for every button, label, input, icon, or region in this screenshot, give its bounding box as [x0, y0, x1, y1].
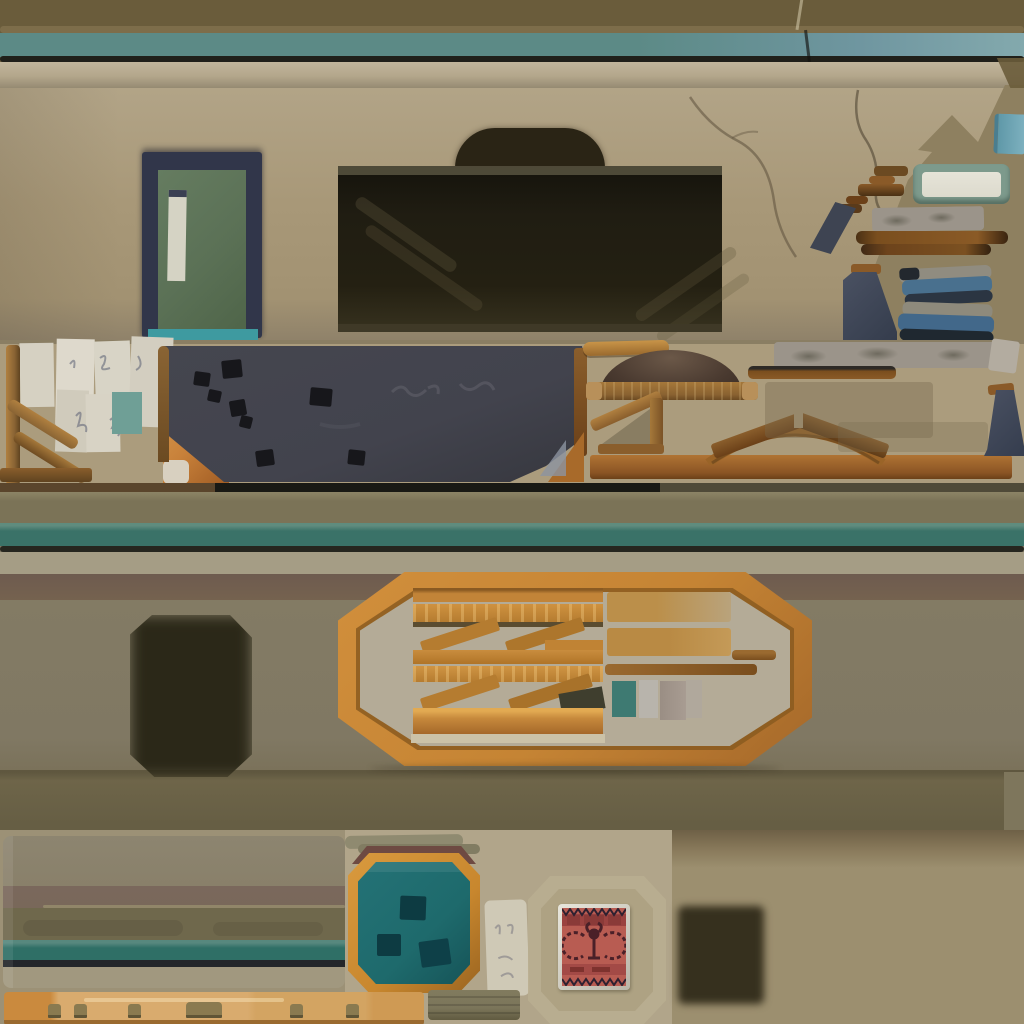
blue-tile: [993, 113, 1024, 154]
board-patch: [347, 449, 365, 466]
stamp-poster: [558, 904, 630, 990]
hatch-hole-2: [377, 934, 401, 956]
skirting-band: [0, 770, 1024, 830]
strata-panel: [3, 836, 345, 988]
board-patch: [207, 389, 222, 403]
plank-peg: [128, 1004, 141, 1018]
band2-teal-stripe: [0, 523, 1024, 546]
teal-note: [112, 392, 142, 434]
railing-base-bar: [0, 468, 92, 482]
opening-bottom-rim: [338, 324, 722, 332]
step-bar-4: [846, 196, 868, 204]
swatch-light: [686, 680, 702, 718]
texture-atlas-sheet: [0, 0, 1024, 1024]
crate-plank-1: [413, 588, 603, 602]
board-patch: [309, 387, 332, 407]
bracket-base: [598, 444, 664, 454]
plank-peg: [290, 1004, 303, 1018]
strata-left-glow: [3, 836, 13, 988]
stamp-poster-art: [562, 908, 626, 986]
crate-plank-5: [413, 708, 603, 734]
strata-dark-smudge: [213, 922, 323, 936]
crate-plank-3: [413, 650, 603, 664]
strata-light-base: [3, 967, 345, 988]
board-left-post: [158, 346, 169, 462]
crate-tan-board-2: [607, 628, 731, 656]
stone-end-piece: [988, 338, 1020, 374]
step-bar-3: [858, 184, 904, 196]
strata-dark-smudge: [23, 920, 183, 936]
shadow-decal-2: [838, 422, 988, 452]
shelf-band: [0, 340, 1024, 492]
stone-lintel-2: [774, 342, 1004, 368]
green-door: [142, 152, 262, 338]
paper-scrap: [484, 899, 529, 996]
wood-beam-3: [748, 366, 896, 379]
hatch-face-highlight: [358, 862, 470, 872]
garage-opening: [338, 166, 722, 332]
paper-note: [19, 343, 54, 408]
ribbed-khaki-bar: [428, 990, 520, 1020]
plank-peg: [48, 1004, 61, 1018]
awning-plank-cap-left: [586, 382, 602, 400]
bottom-right-top-shade: [672, 830, 1024, 868]
board-patch: [255, 449, 275, 467]
step-bar-1: [874, 166, 908, 176]
hatch-hole-3: [418, 938, 451, 968]
scrap-scribbles: [484, 899, 529, 996]
cornice-strip: [0, 62, 1024, 88]
crate-shadow: [370, 764, 780, 773]
wood-beam-2: [861, 244, 991, 255]
swatch-taupe: [660, 681, 686, 720]
awning-plank-cap-right: [742, 382, 758, 400]
framed-box: [913, 164, 1010, 204]
band2-light-ledge: [0, 552, 1024, 574]
trim-teal-stripe: [0, 33, 1024, 57]
strata-light-line: [43, 905, 345, 908]
board-patch: [221, 359, 243, 379]
crate-small-bar: [732, 650, 776, 660]
board-patch: [193, 371, 211, 387]
opening-top-rim: [338, 166, 722, 175]
framed-box-inner: [922, 172, 1001, 197]
bundle-dark-notch: [899, 267, 920, 280]
teal-hatch-face: [358, 862, 470, 984]
trim-highlight: [0, 26, 1024, 33]
crate-tan-board-1: [607, 592, 731, 622]
dark-vent-square: [678, 906, 764, 1004]
plank-peg: [346, 1004, 359, 1018]
crate-sill: [411, 734, 605, 743]
shelf-divider-mid: [215, 483, 660, 492]
plank-peg-wide: [186, 1002, 222, 1018]
strata-dark-line: [3, 960, 345, 967]
opening-beam-2: [363, 223, 485, 313]
crate-long-bar: [605, 664, 757, 675]
stone-lintel: [872, 206, 984, 232]
awning-plank: [586, 382, 758, 400]
swatch-teal: [612, 681, 636, 717]
dark-decal-blob: [130, 615, 252, 777]
shelf-divider-left: [0, 483, 215, 492]
band2-olive: [0, 492, 1024, 523]
roof-trim-strip: [0, 0, 1024, 62]
shelf-divider-right: [660, 483, 1024, 492]
bottom-section: [0, 830, 1024, 1024]
plank-peg: [74, 1004, 87, 1018]
plank-light-streak: [84, 998, 284, 1002]
peg-plank: [4, 992, 424, 1024]
strata-gray: [3, 836, 345, 886]
hatch-hole-1: [400, 896, 427, 921]
navy-chimney-right: [984, 390, 1024, 456]
skirting-end-cap: [1004, 772, 1024, 830]
wood-beam-1: [856, 231, 1008, 244]
door-window: [167, 190, 187, 281]
step-bar-2: [869, 176, 895, 184]
arch-top: [455, 128, 605, 168]
strata-teal: [3, 940, 345, 960]
straw-white-tuft: [163, 460, 189, 484]
wall-left-shade: [0, 88, 120, 345]
swatch-gray: [639, 680, 658, 718]
